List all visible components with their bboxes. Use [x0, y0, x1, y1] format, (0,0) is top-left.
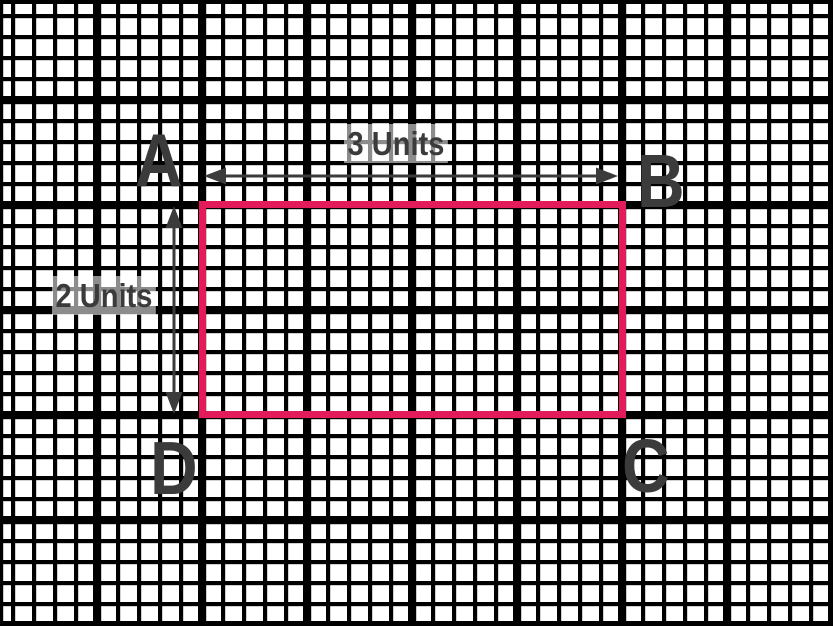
- vertical-dimension-label: 2 Units: [52, 276, 156, 315]
- graph-paper-canvas: A B C D 3 Units 2 Units: [0, 0, 833, 626]
- vertex-label-c: C: [622, 429, 670, 504]
- horizontal-dimension-label: 3 Units: [344, 124, 448, 163]
- rectangle-abcd: [199, 201, 626, 418]
- vertex-label-b: B: [637, 144, 685, 219]
- vertex-label-a: A: [135, 123, 183, 198]
- vertex-label-d: D: [150, 431, 198, 506]
